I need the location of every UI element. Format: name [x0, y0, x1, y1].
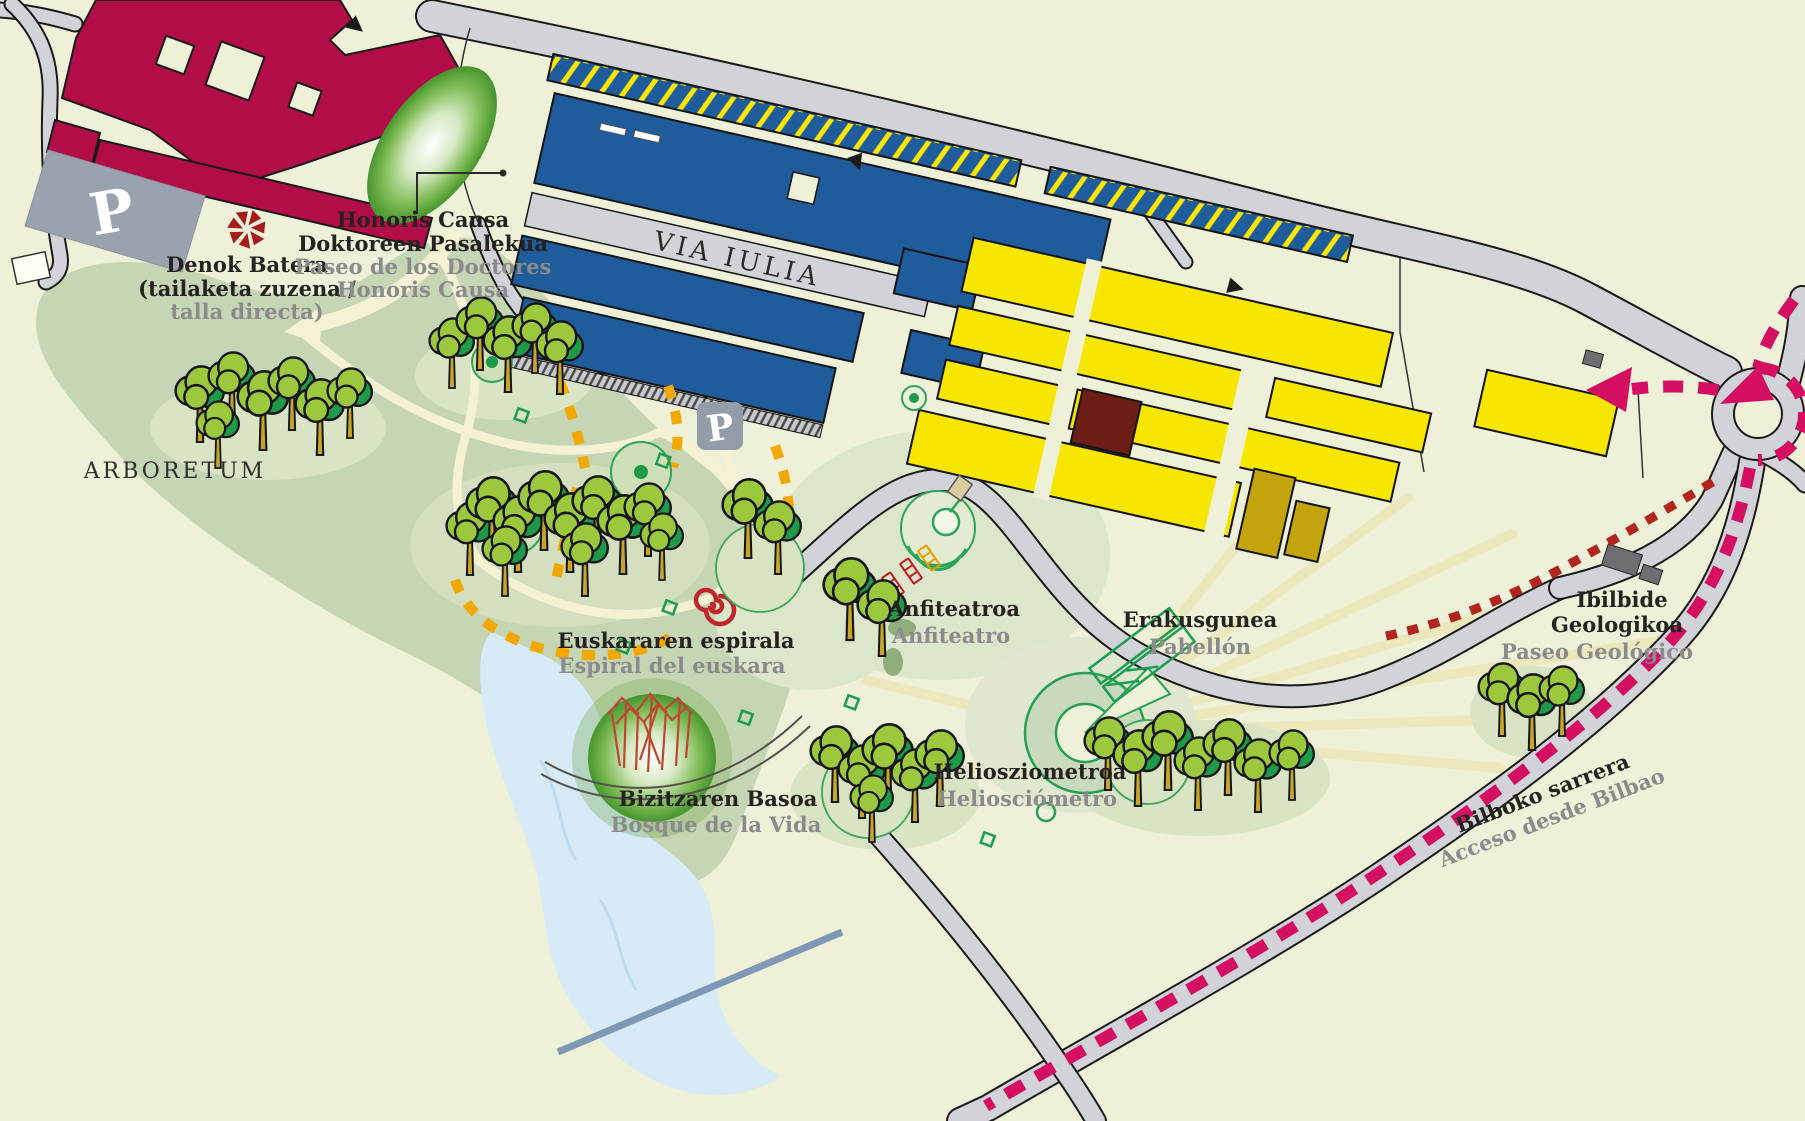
label-denok-batera-line3: talla directa) — [170, 299, 323, 324]
label-ibilbide-eu1: Ibilbide — [1576, 587, 1667, 612]
label-espirala-eu: Euskararen espirala — [557, 628, 794, 653]
label-helio-eu: Heliosziometroa — [934, 759, 1127, 784]
label-basoa-es: Bosque de la Vida — [611, 812, 822, 837]
parking-badge: P — [697, 402, 743, 451]
label-connector-dot — [500, 170, 507, 177]
label-denok-batera-line2: (tailaketa zuzena / — [138, 276, 356, 301]
label-arboretum: ARBORETUM — [83, 459, 266, 484]
label-espirala-es: Espiral del euskara — [558, 653, 785, 678]
label-basoa-eu: Bizitzaren Basoa — [619, 786, 818, 811]
label-erakusgunea-eu: Erakusgunea — [1123, 607, 1278, 632]
label-ibilbide-es: Paseo Geológico — [1501, 639, 1693, 664]
label-honoris-line1: Honoris Causa — [337, 207, 510, 232]
label-helio-es: Heliosciómetro — [937, 786, 1117, 811]
parking-icon: P — [704, 405, 737, 450]
map-canvas: P VIA IULIA — [0, 0, 1805, 1121]
label-erakusgunea-es: Pabellón — [1149, 634, 1251, 659]
label-honoris-line3: Paseo de los Doctores — [295, 254, 552, 279]
label-honoris-line4: Honoris Causa — [337, 277, 510, 302]
campus-map: P VIA IULIA — [0, 0, 1805, 1121]
label-anfiteatroa-es: Anfiteatro — [891, 623, 1010, 648]
label-honoris-line2: Doktoreen Pasalekua — [298, 231, 548, 256]
label-anfiteatroa-eu: Anfiteatroa — [887, 596, 1020, 621]
label-ibilbide-eu2: Geologikoa — [1551, 612, 1684, 637]
